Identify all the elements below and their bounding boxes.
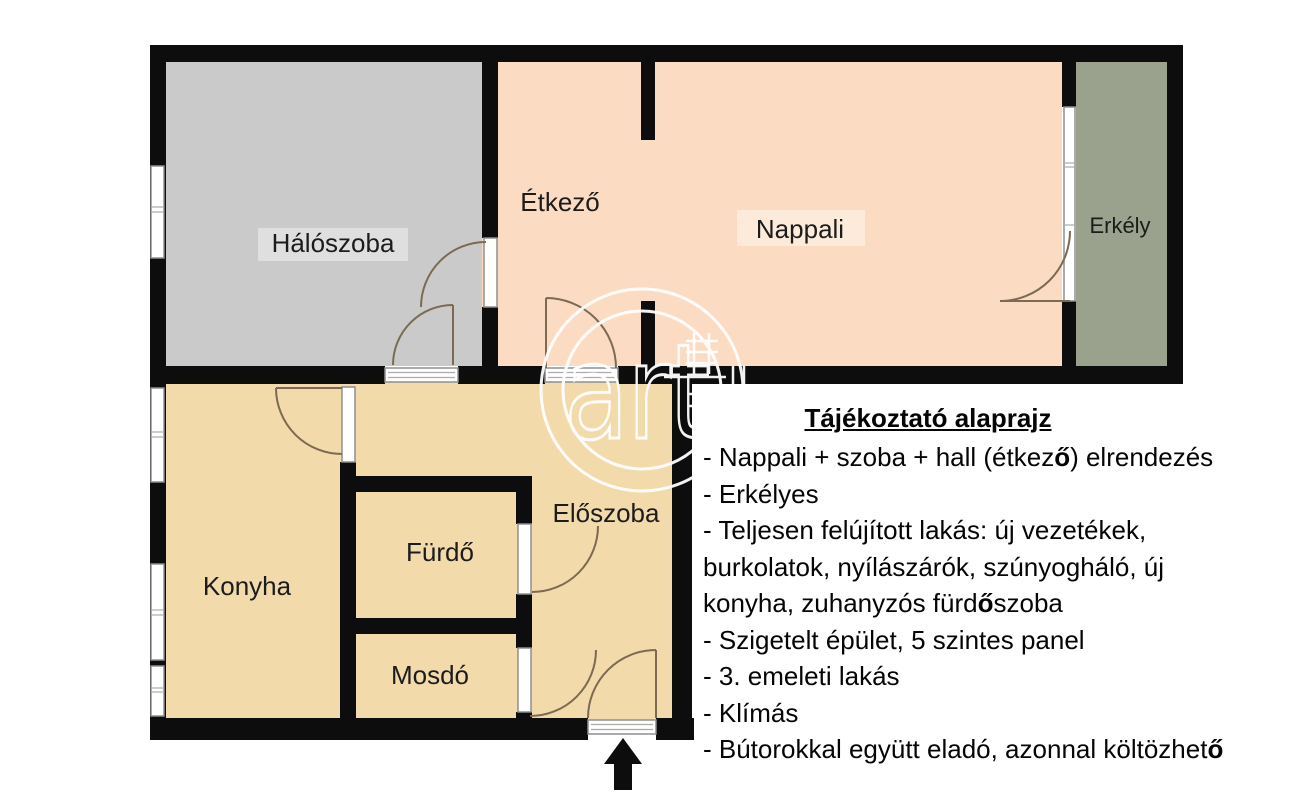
arrow-shaft — [614, 764, 632, 790]
entrance-arrow-icon — [604, 738, 642, 790]
door-slab-mosdo — [518, 648, 531, 712]
watermark-text: art — [564, 317, 709, 470]
entrance-door-sill — [588, 720, 656, 734]
wall-furdo-mosdo — [340, 618, 532, 634]
window-erkely-door — [1064, 107, 1075, 301]
room-label-konyha: Konyha — [203, 571, 292, 601]
wall-haloszoba-etkezo-upper — [482, 62, 498, 238]
room-label-eloszoba: Előszoba — [553, 498, 660, 528]
note-line: - 3. emeleti lakás — [703, 658, 1303, 695]
wall-furdo-block-top — [340, 476, 532, 492]
wall-haloszoba-etkezo-lower — [482, 307, 498, 366]
notes-list: - Nappali + szoba + hall (étkező) elrend… — [703, 439, 1303, 768]
notes-panel: Tájékoztató alaprajz - Nappali + szoba +… — [703, 402, 1303, 768]
door-sill-haloszoba — [385, 368, 458, 382]
window-haloszoba-left — [151, 166, 164, 258]
wall-top — [150, 45, 1183, 62]
window-konyha-1 — [151, 388, 164, 482]
door-slab-furdo — [518, 524, 531, 594]
floorplan-page: art Hálószoba Étkező Nappali Erkély Kony… — [0, 0, 1307, 794]
arrow-head — [604, 738, 642, 764]
note-line: - Klímás — [703, 695, 1303, 732]
room-haloszoba — [166, 62, 482, 366]
note-line: - Nappali + szoba + hall (étkező) elrend… — [703, 439, 1303, 476]
door-slab-konyha — [342, 387, 355, 462]
wall-furdo-right-2 — [516, 594, 532, 648]
wall-etkezo-nappali-stub-top — [641, 62, 655, 140]
note-line: - Erkélyes — [703, 476, 1303, 513]
wall-bottom-1 — [150, 718, 588, 740]
room-label-mosdo: Mosdó — [391, 660, 469, 690]
note-line: - Bútorokkal együtt eladó, azonnal költö… — [703, 731, 1303, 768]
wall-nappali-erkely-lower — [1062, 301, 1076, 366]
wall-right — [1167, 45, 1183, 384]
note-line: konyha, zuhanyzós fürdőszoba — [703, 585, 1303, 622]
window-konyha-3 — [151, 666, 164, 716]
wall-furdo-block-left — [340, 462, 356, 718]
note-line: burkolatok, nyílászárók, szúnyogháló, új — [703, 549, 1303, 586]
notes-title: Tájékoztató alaprajz — [703, 402, 1153, 434]
wall-furdo-right-3 — [516, 712, 532, 718]
note-line: - Teljesen felújított lakás: új vezetéke… — [703, 512, 1303, 549]
wall-furdo-right-1 — [516, 476, 532, 524]
room-label-nappali: Nappali — [756, 214, 844, 244]
note-line: - Szigetelt épület, 5 szintes panel — [703, 622, 1303, 659]
wall-nappali-erkely-upper — [1062, 62, 1076, 107]
room-label-haloszoba: Hálószoba — [272, 228, 395, 258]
window-konyha-2 — [151, 564, 164, 660]
room-label-erkely: Erkély — [1089, 213, 1150, 238]
door-slab-haloszoba-etkezo — [484, 238, 497, 307]
wall-mid-horizontal-1 — [150, 366, 385, 384]
room-label-etkezo: Étkező — [520, 187, 600, 217]
room-label-furdo: Fürdő — [406, 537, 474, 567]
wall-mid-horizontal-2 — [458, 366, 545, 384]
